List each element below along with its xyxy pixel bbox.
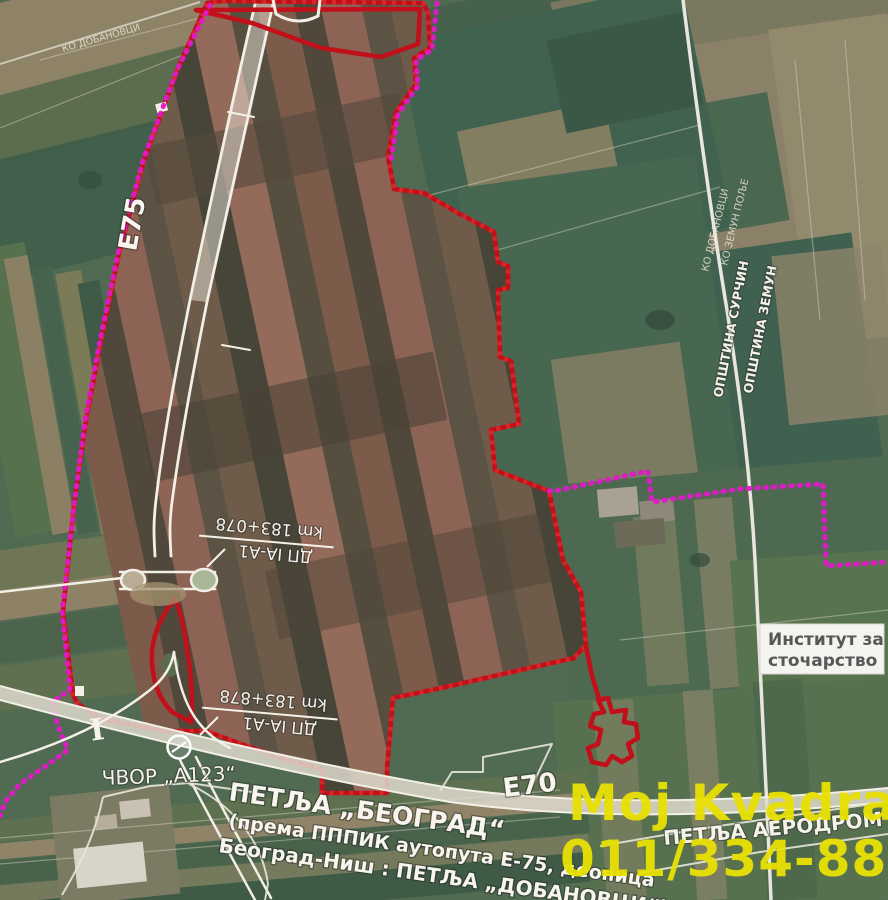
satellite-map: I ДП IА-А1 km 183+078 ДП IА-А1 km 183+87…: [0, 0, 888, 900]
watermark: Moj Kvadrat 011/334-88-36: [560, 774, 888, 888]
institute-line1: Институт за: [768, 630, 884, 650]
watermark-line2: 011/334-88-36: [560, 830, 888, 888]
map-canvas[interactable]: I ДП IА-А1 km 183+078 ДП IА-А1 km 183+87…: [0, 0, 888, 900]
cvor-a123-label: ЧВОР „А123“: [101, 761, 236, 790]
institute-callout: Институт за сточарство: [760, 624, 884, 674]
watermark-line1: Moj Kvadrat: [568, 774, 888, 832]
institute-line2: сточарство: [768, 651, 877, 671]
